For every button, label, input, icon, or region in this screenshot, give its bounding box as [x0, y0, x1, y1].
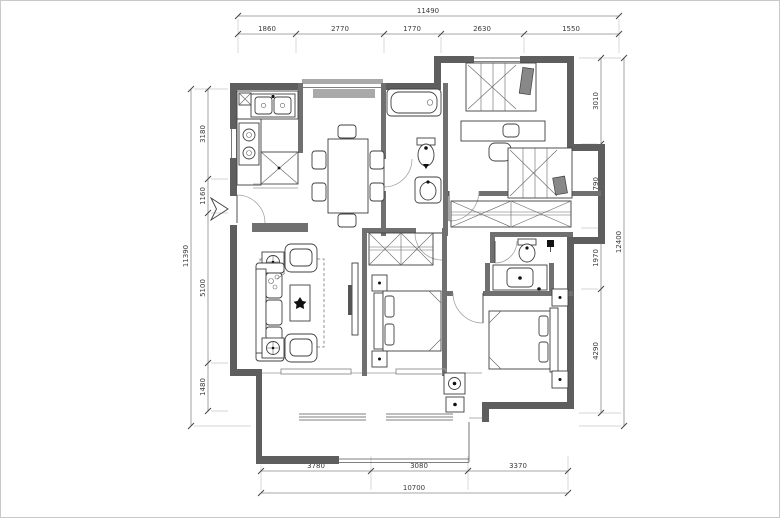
bath2-door — [495, 241, 517, 263]
master-bedroom-door — [415, 233, 442, 260]
master-bed — [374, 291, 441, 351]
dim-bottom-seg-3: 3370 — [509, 462, 527, 470]
window-kitchen-left — [232, 129, 237, 158]
dining-room — [312, 89, 384, 227]
dimension-chain-top: 11490 1860 2770 1770 2630 1550 — [235, 7, 622, 53]
balcony-appliance — [446, 397, 464, 412]
bathroom-2 — [493, 239, 554, 291]
tv-cabinet — [348, 263, 358, 335]
dim-top-total: 11490 — [417, 7, 439, 15]
bathroom-1 — [387, 89, 441, 203]
master-wardrobe — [369, 233, 433, 265]
dim-right-seg-1: 3010 — [592, 92, 600, 110]
master-nightstand-top — [372, 275, 387, 291]
floor-plan-canvas: 11490 1860 2770 1770 2630 1550 11390 318… — [0, 0, 780, 518]
dim-right-total: 12400 — [615, 231, 623, 253]
master-bedroom — [369, 233, 441, 367]
bath1-door — [384, 159, 412, 187]
dim-left-seg-1: 3180 — [199, 125, 207, 143]
window-balcony-bottom — [339, 422, 469, 463]
dim-right-seg-4: 4290 — [592, 342, 600, 360]
hall-closet — [451, 201, 571, 227]
fridge — [261, 152, 298, 184]
bed-1 — [466, 63, 536, 111]
armchair-top — [285, 244, 317, 272]
coffee-table — [290, 285, 310, 321]
entry-direction-arrow — [211, 198, 228, 220]
wash-basin-1 — [415, 177, 441, 203]
balcony — [444, 373, 465, 412]
window-balcony-sliding — [299, 414, 453, 420]
kitchen — [237, 91, 298, 188]
dim-top-seg-1: 1860 — [258, 25, 276, 33]
dim-top-seg-2: 2770 — [331, 25, 349, 33]
dim-left-seg-2: 1160 — [199, 187, 207, 205]
bedroom2-nightstand-top — [552, 289, 568, 306]
toilet-1 — [417, 138, 435, 169]
bed-2 — [508, 148, 572, 198]
side-table-lamp-bottom — [262, 338, 284, 358]
master-nightstand-bottom — [372, 351, 387, 367]
dim-top-seg-5: 1550 — [562, 25, 580, 33]
dim-left-seg-3: 5100 — [199, 279, 207, 297]
dim-left-seg-4: 1480 — [199, 378, 207, 396]
bedroom-1 — [461, 63, 572, 198]
armchair-bottom — [285, 334, 317, 362]
kitchen-small-appliance — [239, 93, 251, 105]
bathtub — [387, 89, 441, 116]
window-dining-top — [302, 79, 383, 88]
bedroom2-bed — [489, 308, 558, 372]
bedroom-2 — [489, 289, 568, 388]
dim-right-seg-3: 1970 — [592, 249, 600, 267]
tv — [348, 285, 352, 315]
dining-table — [328, 139, 368, 213]
sideboard — [313, 89, 375, 98]
washing-machine — [444, 373, 465, 394]
master-headboard — [374, 293, 383, 349]
dim-bottom-seg-2: 3080 — [410, 462, 428, 470]
bedroom2-door — [453, 293, 483, 323]
toilet-2 — [518, 239, 536, 262]
dim-top-seg-3: 1770 — [403, 25, 421, 33]
window-bedroom1-top — [474, 58, 520, 62]
floor-drain-tap — [547, 240, 554, 252]
kitchen-sink — [251, 94, 295, 117]
wash-basin-2 — [493, 265, 547, 291]
living-room — [256, 244, 358, 362]
kitchen-stove — [239, 123, 259, 165]
dim-bottom-total: 10700 — [403, 484, 425, 492]
dim-left-total: 11390 — [182, 245, 190, 267]
bedroom2-headboard — [550, 308, 558, 372]
bedroom2-nightstand-bottom — [552, 371, 568, 388]
dim-top-seg-4: 2630 — [473, 25, 491, 33]
entry-door — [237, 195, 265, 223]
floor-plan-drawing: 11490 1860 2770 1770 2630 1550 11390 318… — [1, 1, 780, 518]
